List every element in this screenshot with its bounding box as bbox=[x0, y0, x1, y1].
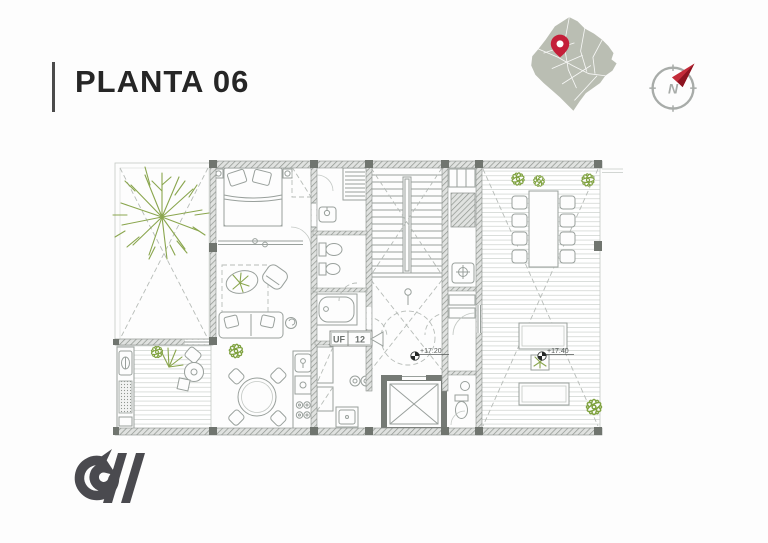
terrace-right bbox=[481, 168, 602, 428]
tree bbox=[113, 167, 209, 259]
floor-plan: UF 12 +17.20 +17.40 bbox=[105, 155, 630, 445]
level-text-2: +17.40 bbox=[547, 348, 569, 355]
unit-label-box: UF 12 bbox=[330, 331, 372, 346]
door-swing-marker bbox=[371, 332, 383, 346]
unit-label-uf: UF bbox=[333, 335, 345, 345]
city-outline bbox=[531, 17, 616, 111]
page-title: PLANTA 06 bbox=[75, 64, 249, 100]
compass-north-icon: N bbox=[644, 57, 702, 115]
cv-monogram-logo bbox=[70, 446, 158, 504]
balcony bbox=[115, 339, 213, 429]
city-location-map bbox=[523, 12, 631, 120]
unit-label-number: 12 bbox=[355, 335, 365, 345]
grill bbox=[117, 347, 134, 429]
service-strip bbox=[449, 169, 475, 425]
title-accent-bar bbox=[52, 62, 55, 112]
kitchen bbox=[293, 351, 313, 429]
terrace-left bbox=[113, 163, 213, 343]
compass-north-label: N bbox=[668, 81, 679, 97]
dining-table bbox=[228, 367, 288, 427]
bathrooms bbox=[316, 168, 371, 427]
elevator-lobby bbox=[367, 311, 447, 433]
presentation-slide: PLANTA 06 N bbox=[0, 0, 768, 543]
level-text-1: +17.20 bbox=[420, 348, 442, 355]
living-room bbox=[219, 262, 313, 429]
bedroom bbox=[214, 167, 311, 247]
